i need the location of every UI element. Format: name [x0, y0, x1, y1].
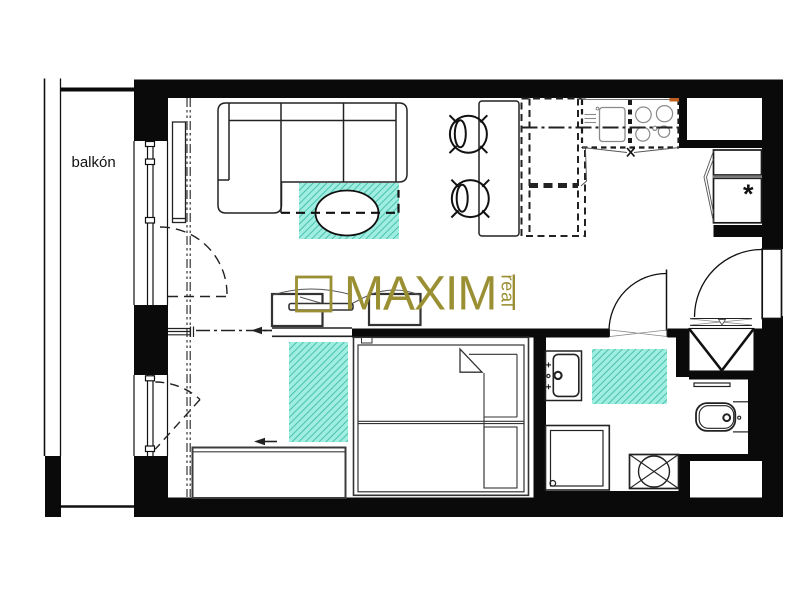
- svg-text:*: *: [743, 179, 754, 209]
- svg-text:balkón: balkón: [72, 154, 116, 171]
- svg-text:MAXIM: MAXIM: [344, 268, 496, 321]
